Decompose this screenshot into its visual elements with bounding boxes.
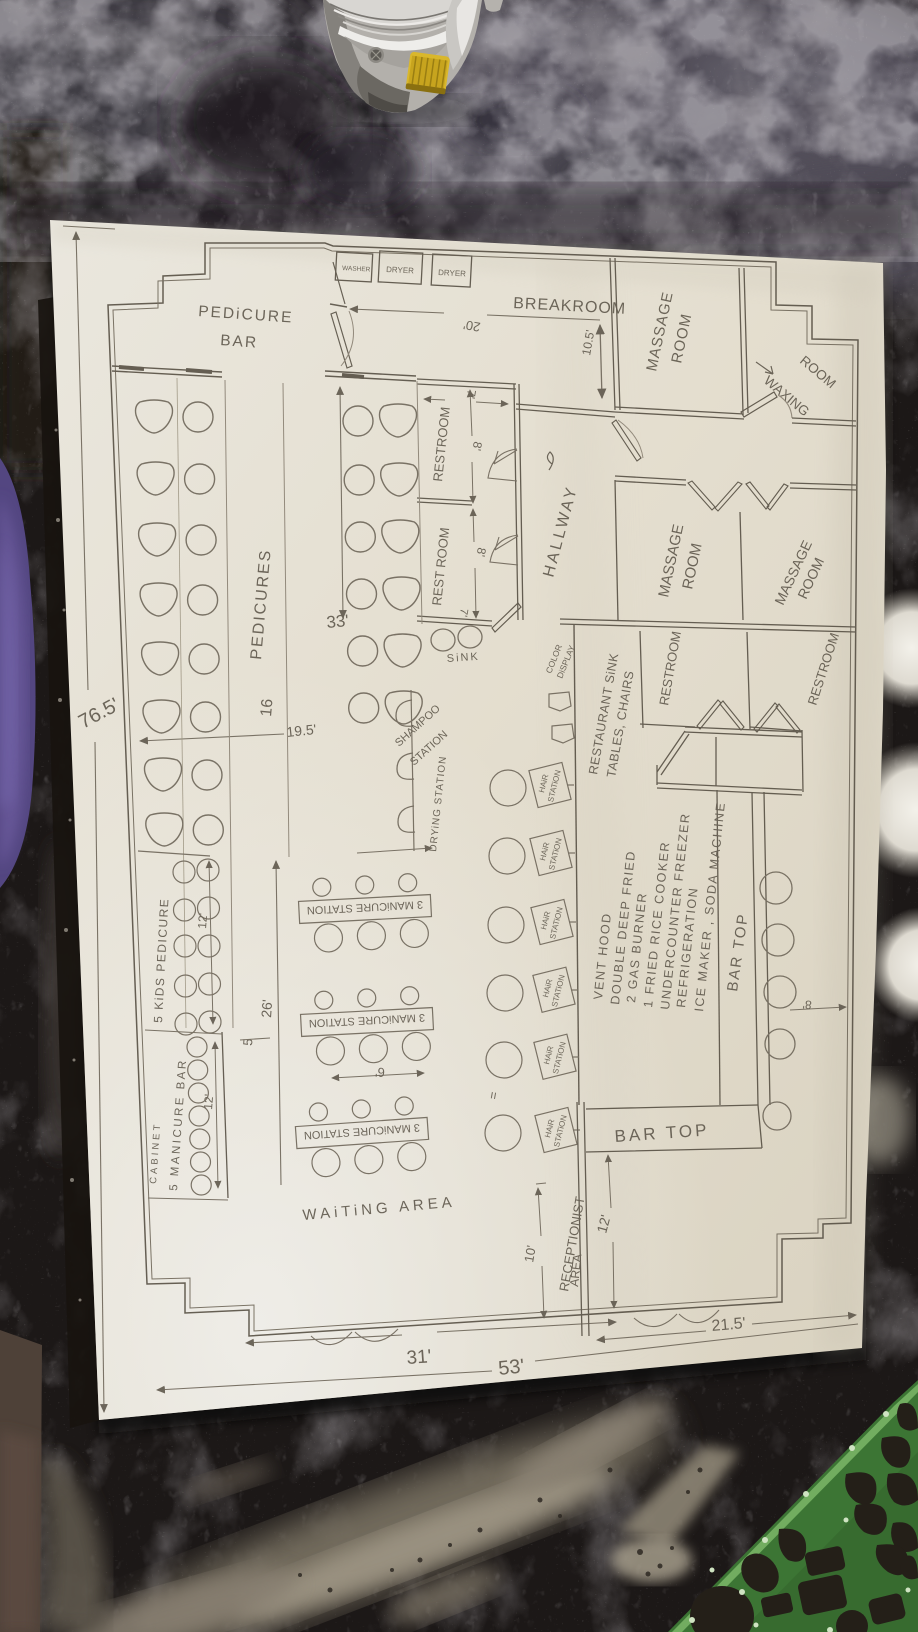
svg-text:ROOM: ROOM: [797, 353, 839, 391]
svg-text:STATiON: STATiON: [548, 906, 565, 940]
svg-text:ROOM: ROOM: [668, 312, 695, 365]
svg-text:33': 33': [326, 611, 350, 632]
svg-text:31': 31': [406, 1346, 432, 1369]
svg-text:DRYER: DRYER: [386, 265, 415, 275]
svg-text:BAR TOP: BAR TOP: [614, 1120, 710, 1146]
svg-text:WAXING: WAXING: [761, 373, 812, 419]
svg-text:12': 12': [201, 1094, 216, 1111]
svg-text:RESTROOM: RESTROOM: [656, 630, 684, 707]
svg-text:10': 10': [521, 1244, 539, 1263]
svg-text:10.5': 10.5': [579, 329, 597, 357]
svg-text:7': 7': [463, 388, 478, 399]
svg-text:STATiON: STATiON: [547, 837, 564, 871]
svg-text:RESTROOM: RESTROOM: [430, 406, 453, 482]
svg-text:7': 7': [457, 607, 470, 617]
svg-text:STATiON: STATiON: [551, 1041, 568, 1075]
svg-text:REST ROOM: REST ROOM: [429, 527, 452, 607]
svg-text:26': 26': [258, 999, 275, 1018]
svg-text:STATiON: STATiON: [552, 1114, 569, 1148]
svg-text:AREA: AREA: [567, 1253, 584, 1287]
svg-text:3 MANiCURE STATION: 3 MANiCURE STATION: [303, 1121, 420, 1141]
svg-text:ROOM: ROOM: [679, 542, 705, 591]
svg-text:=: =: [485, 1090, 501, 1100]
svg-text:12': 12': [195, 913, 210, 930]
svg-text:BAR: BAR: [220, 332, 259, 352]
svg-text:20': 20': [462, 317, 481, 335]
svg-text:SiNK: SiNK: [446, 651, 480, 665]
svg-text:8': 8': [469, 440, 484, 451]
svg-text:DRYiNG STATION: DRYiNG STATION: [428, 755, 449, 852]
svg-text:STATiON: STATiON: [550, 974, 567, 1008]
svg-text:STATiON: STATiON: [546, 769, 563, 803]
svg-text:WASHER: WASHER: [342, 265, 371, 273]
svg-text:BAR TOP: BAR TOP: [724, 912, 752, 993]
svg-text:76.5': 76.5': [75, 694, 123, 733]
svg-text:DRYER: DRYER: [438, 268, 467, 278]
svg-text:PEDiCURE: PEDiCURE: [198, 303, 294, 327]
svg-text:21.5': 21.5': [711, 1315, 747, 1335]
svg-text:19.5': 19.5': [286, 721, 317, 740]
svg-text:5 KiDS PEDICURE: 5 KiDS PEDICURE: [151, 897, 172, 1023]
svg-text:5 MANICURE BAR: 5 MANICURE BAR: [168, 1058, 189, 1191]
svg-text:CABINET: CABINET: [148, 1121, 163, 1184]
svg-text:12': 12': [593, 1213, 613, 1235]
svg-text:BREAKROOM: BREAKROOM: [513, 295, 627, 318]
svg-text:6': 6': [375, 1065, 385, 1080]
svg-text:8': 8': [802, 997, 812, 1012]
svg-text:RESTROOM: RESTROOM: [805, 631, 842, 707]
svg-text:53': 53': [497, 1355, 525, 1380]
svg-text:16: 16: [258, 698, 276, 717]
svg-text:WAiTiNG AREA: WAiTiNG AREA: [302, 1194, 456, 1224]
svg-text:HALLWAY: HALLWAY: [540, 483, 581, 579]
svg-text:8': 8': [473, 546, 488, 557]
svg-text:PEDICURES: PEDICURES: [248, 548, 275, 660]
